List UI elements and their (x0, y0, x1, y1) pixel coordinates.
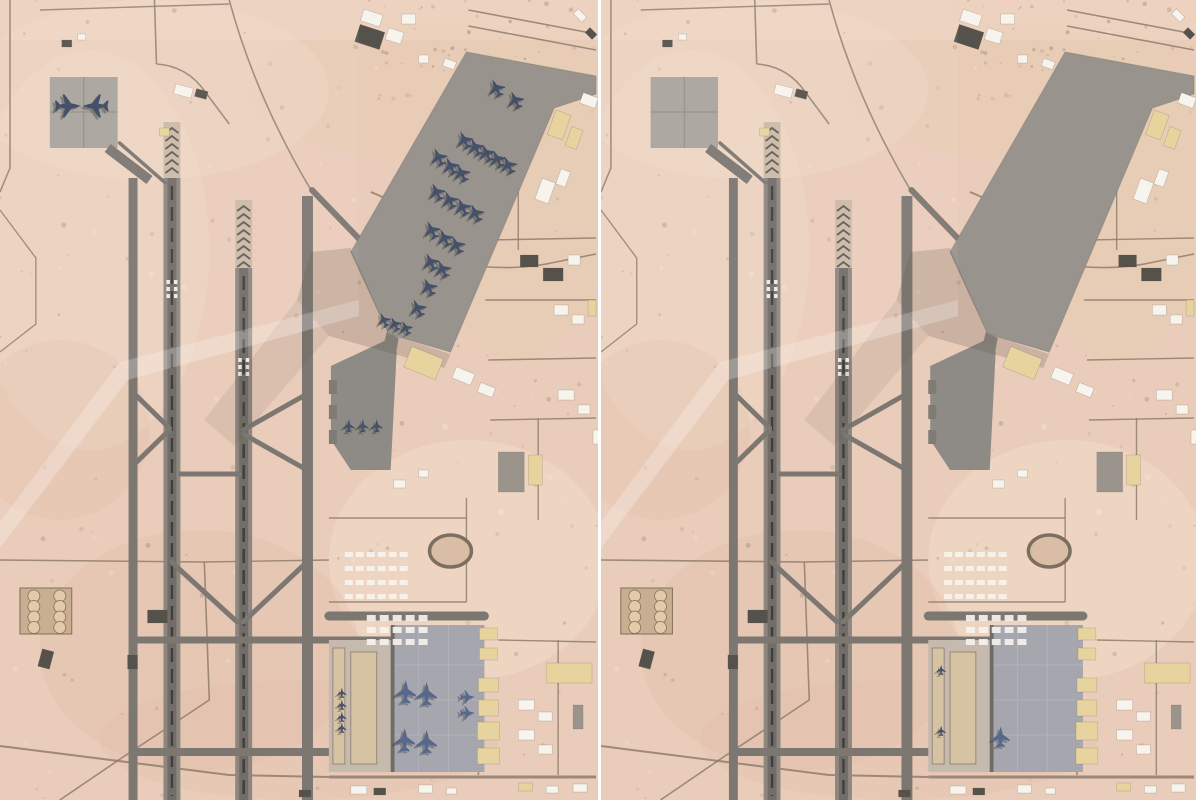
building (899, 790, 911, 797)
building (478, 700, 498, 716)
building (479, 648, 497, 660)
satellite-photo-after (601, 0, 1196, 800)
building (419, 55, 429, 63)
building (1078, 648, 1096, 660)
building (1171, 784, 1185, 792)
building (543, 268, 563, 281)
building (950, 786, 966, 794)
building (1117, 783, 1131, 791)
building (588, 300, 596, 316)
building (1137, 712, 1151, 721)
building (419, 470, 429, 477)
building (520, 255, 538, 267)
building (1045, 788, 1055, 794)
building (1170, 315, 1182, 324)
building (477, 722, 499, 740)
building (148, 610, 168, 623)
image-edge (1196, 0, 1200, 800)
building (1117, 700, 1133, 710)
building (568, 255, 580, 265)
building (748, 610, 768, 623)
building (128, 655, 138, 669)
building (1018, 785, 1032, 793)
building (1001, 14, 1015, 24)
building (1018, 55, 1028, 63)
building (518, 700, 534, 710)
building (573, 784, 587, 792)
airbase-image-left (0, 0, 598, 800)
building (402, 14, 416, 24)
building (1127, 455, 1141, 485)
building (528, 455, 542, 485)
building (578, 405, 590, 414)
building (1077, 678, 1097, 692)
building (1117, 730, 1133, 740)
building (1076, 722, 1098, 740)
building (518, 783, 532, 791)
satellite-comparison (0, 0, 1200, 800)
building (558, 390, 574, 400)
building (299, 790, 311, 797)
building (1119, 255, 1137, 267)
building (1176, 405, 1188, 414)
building (351, 786, 367, 794)
building (1018, 470, 1028, 477)
building (518, 730, 534, 740)
building (538, 745, 552, 754)
building (728, 655, 738, 669)
building (1144, 663, 1190, 683)
building (498, 452, 524, 492)
building (1141, 268, 1161, 281)
building (1076, 748, 1098, 764)
building (1077, 700, 1097, 716)
building (374, 788, 386, 795)
satellite-photo-before (0, 0, 598, 800)
building (447, 788, 457, 794)
building (1166, 255, 1178, 265)
building (1152, 305, 1166, 315)
building (993, 480, 1005, 488)
building (546, 786, 558, 793)
building (1097, 452, 1123, 492)
building (1171, 705, 1181, 729)
building (973, 788, 985, 795)
building (546, 663, 592, 683)
building (478, 678, 498, 692)
building (573, 705, 583, 729)
building (479, 628, 497, 640)
building (538, 712, 552, 721)
building (419, 785, 433, 793)
building (477, 748, 499, 764)
building (394, 480, 406, 488)
building (1186, 300, 1194, 316)
building (1144, 786, 1156, 793)
building (1156, 390, 1172, 400)
building (1078, 628, 1096, 640)
building (554, 305, 568, 315)
building (1137, 745, 1151, 754)
airbase-image-right (601, 0, 1196, 800)
building (572, 315, 584, 324)
